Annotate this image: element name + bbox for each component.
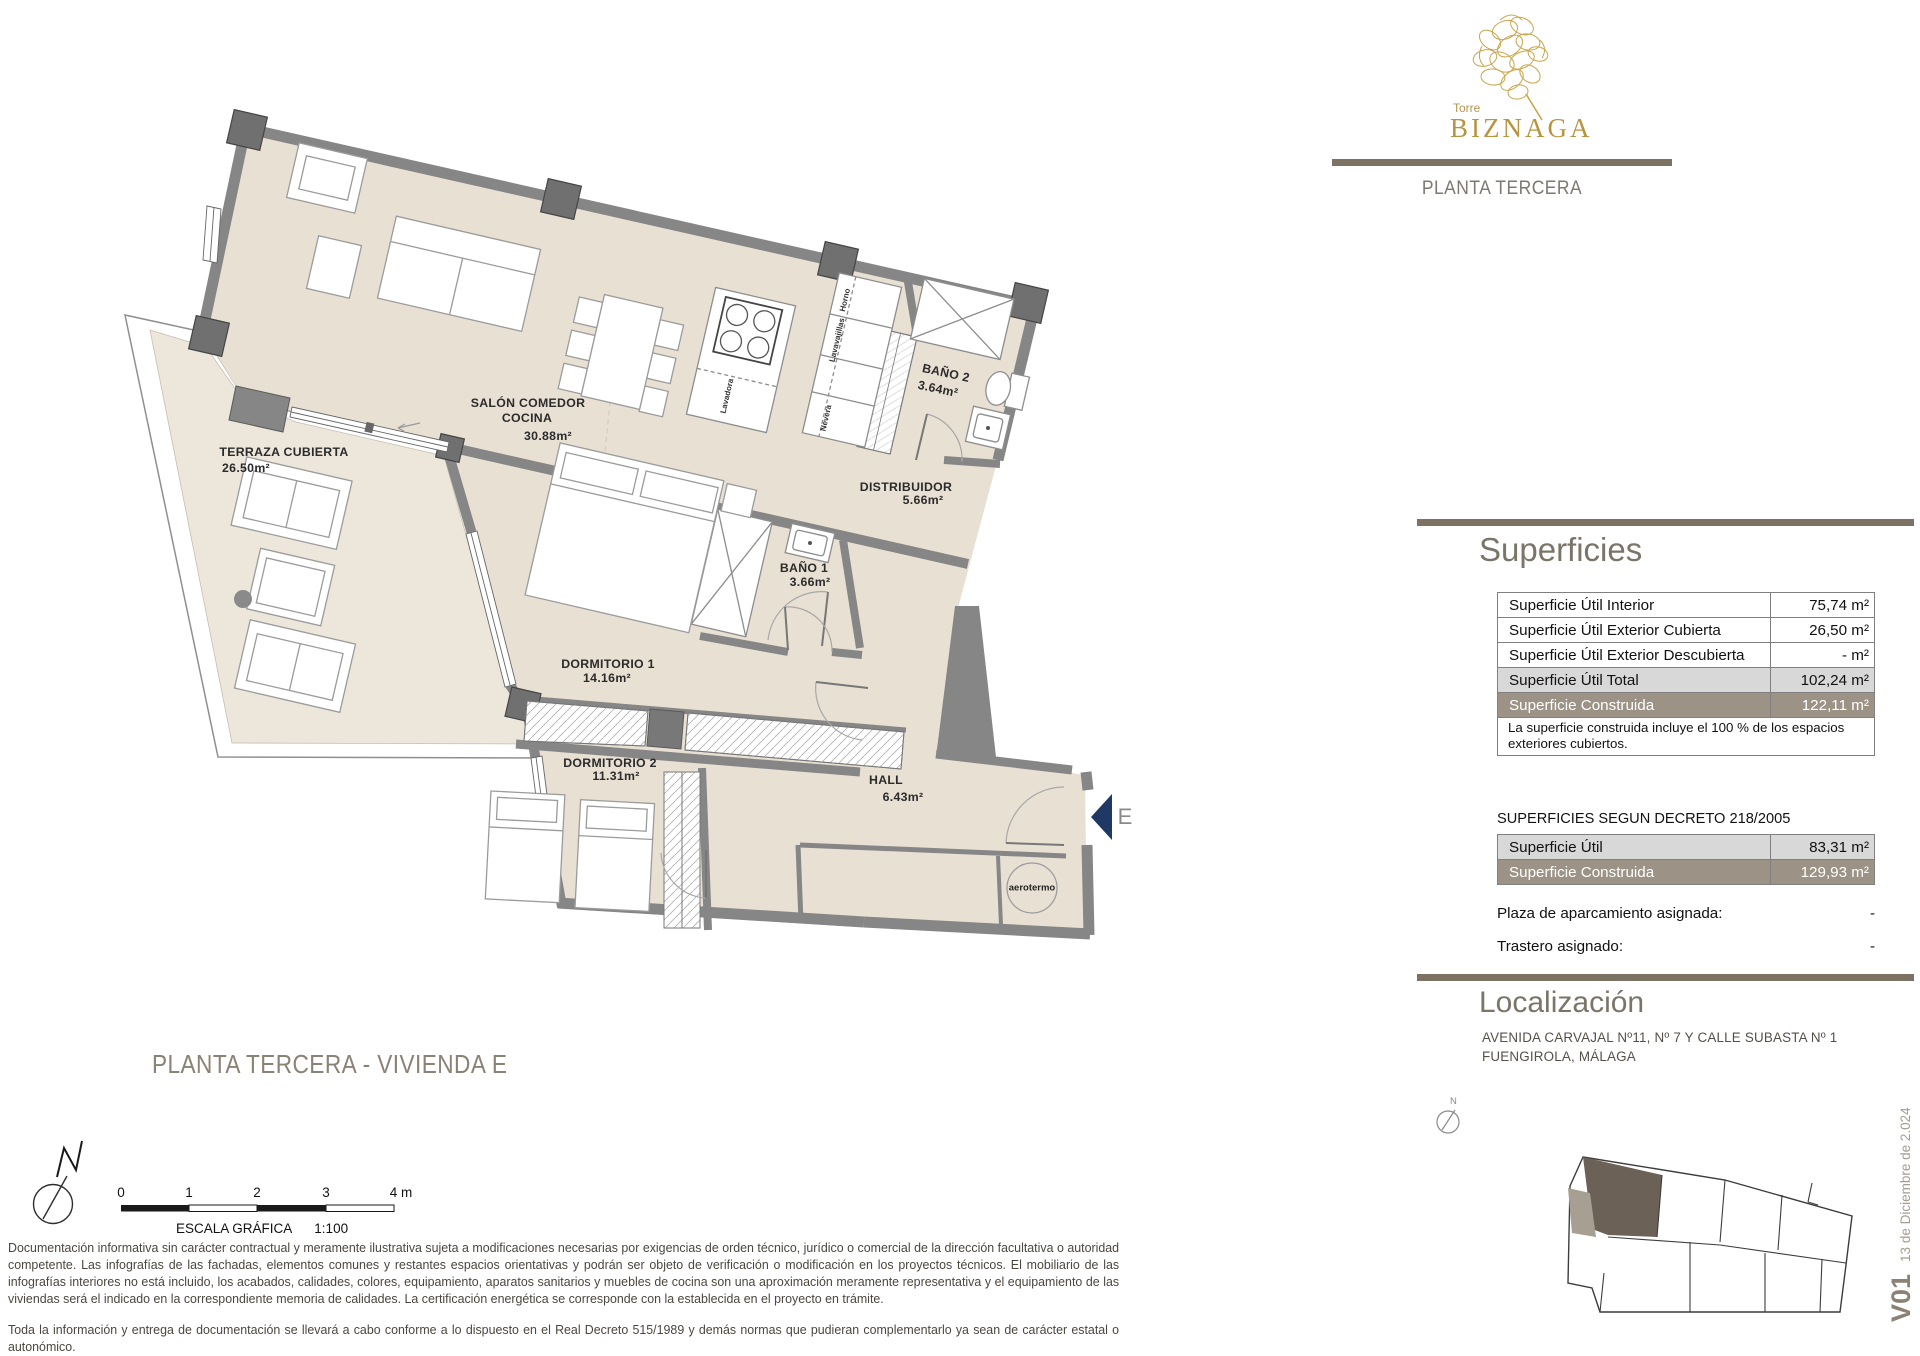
scale-caption: ESCALA GRÁFICA1:100 [176,1221,348,1236]
label-terraza: TERRAZA CUBIERTA [219,445,348,459]
row-label: Superficie Construida [1498,693,1771,718]
scale-caption-text: ESCALA GRÁFICA [176,1221,292,1236]
storage-value: - [1870,938,1875,955]
row-value: 122,11 m² [1771,693,1875,718]
table-row: Superficie Útil Interior 75,74 m² [1498,593,1875,618]
decreto-table: Superficie Útil 83,31 m² Superficie Cons… [1497,834,1875,885]
row-value: 75,74 m² [1771,593,1875,618]
storage-row: Trastero asignado: - [1497,938,1875,955]
parking-row: Plaza de aparcamiento asignada: - [1497,905,1875,922]
row-value: 102,24 m² [1771,668,1875,693]
superficies-table: Superficie Útil Interior 75,74 m² Superf… [1497,592,1875,756]
label-salon: SALÓN COMEDOR [471,396,586,410]
scale-tick-0: 0 [117,1185,125,1200]
row-value: - m² [1771,643,1875,668]
terrace-table [234,590,252,608]
storage-label: Trastero asignado: [1497,938,1623,955]
version-code: V01 [1886,1274,1916,1322]
label-terraza-area: 26.50m² [222,461,270,475]
label-hall: HALL [869,773,903,787]
parking-label: Plaza de aparcamiento asignada: [1497,905,1722,922]
mini-compass-north: N [1450,1096,1457,1107]
row-label: Superficie Útil [1498,835,1771,860]
label-salon-area: 30.88m² [524,429,572,443]
brand-biznaga: BIZNAGA [1450,113,1593,144]
plan-title: PLANTA TERCERA - VIVIENDA E [152,1049,507,1080]
parking-value: - [1870,905,1875,922]
row-label: Superficie Útil Exterior Cubierta [1498,618,1771,643]
label-bano1-area: 3.66m² [790,575,831,589]
label-hall-area: 6.43m² [883,790,924,804]
label-distribuidor-area: 5.66m² [903,493,944,507]
label-bano1: BAÑO 1 [780,561,828,575]
scale-tick-3: 3 [322,1185,330,1200]
table-note-row: La superficie construida incluye el 100 … [1498,718,1875,756]
table-row: Superficie Útil Exterior Descubierta - m… [1498,643,1875,668]
localizacion-title: Localización [1479,986,1644,1020]
row-label: Superficie Útil Total [1498,668,1771,693]
label-distribuidor: DISTRIBUIDOR [860,480,952,494]
entry-arrow-icon [1091,794,1112,840]
row-label: Superficie Útil Exterior Descubierta [1498,643,1771,668]
address-line-1: AVENIDA CARVAJAL Nº11, Nº 7 Y CALLE SUBA… [1482,1030,1837,1045]
table-row: Superficie Construida 122,11 m² [1498,693,1875,718]
address-line-2: FUENGIROLA, MÁLAGA [1482,1049,1636,1064]
table-row: Superficie Útil Total 102,24 m² [1498,668,1875,693]
table-row: Superficie Útil Exterior Cubierta 26,50 … [1498,618,1875,643]
label-dorm2-area: 11.31m² [592,769,639,783]
label-aerotermo: aerotermo [1009,883,1055,894]
row-label: Superficie Construida [1498,860,1771,885]
scale-tick-1: 1 [185,1185,193,1200]
scale-tick-4: 4 m [390,1185,413,1200]
version-block: V0113 de Diciembre de 2.024 [1886,1107,1917,1322]
superficies-title: Superficies [1479,531,1642,569]
version-date: 13 de Diciembre de 2.024 [1898,1107,1913,1262]
legal-paragraph-1: Documentación informativa sin carácter c… [8,1240,1119,1308]
legal-paragraph-2: Toda la información y entrega de documen… [8,1322,1119,1356]
row-label: Superficie Útil Interior [1498,593,1771,618]
site-key-plan [1560,1145,1870,1330]
label-dorm1-area: 14.16m² [583,671,631,685]
localizacion-divider [1417,974,1914,981]
label-dorm1: DORMITORIO 1 [561,657,655,671]
table-row: Superficie Útil 83,31 m² [1498,835,1875,860]
row-value: 26,50 m² [1771,618,1875,643]
row-value: 83,31 m² [1771,835,1875,860]
table-note: La superficie construida incluye el 100 … [1498,718,1875,756]
scale-tick-2: 2 [253,1185,261,1200]
table-row: Superficie Construida 129,93 m² [1498,860,1875,885]
label-salon-2: COCINA [502,411,552,425]
superficies-divider [1417,519,1914,526]
decreto-title: SUPERFICIES SEGUN DECRETO 218/2005 [1497,811,1790,827]
entry-letter: E [1118,804,1133,830]
header-divider [1332,159,1672,166]
row-value: 129,93 m² [1771,860,1875,885]
label-dorm2: DORMITORIO 2 [563,756,657,770]
floor-label: PLANTA TERCERA [1392,178,1613,200]
scale-ratio: 1:100 [314,1221,348,1236]
floorplan-drawing [0,0,1160,1010]
